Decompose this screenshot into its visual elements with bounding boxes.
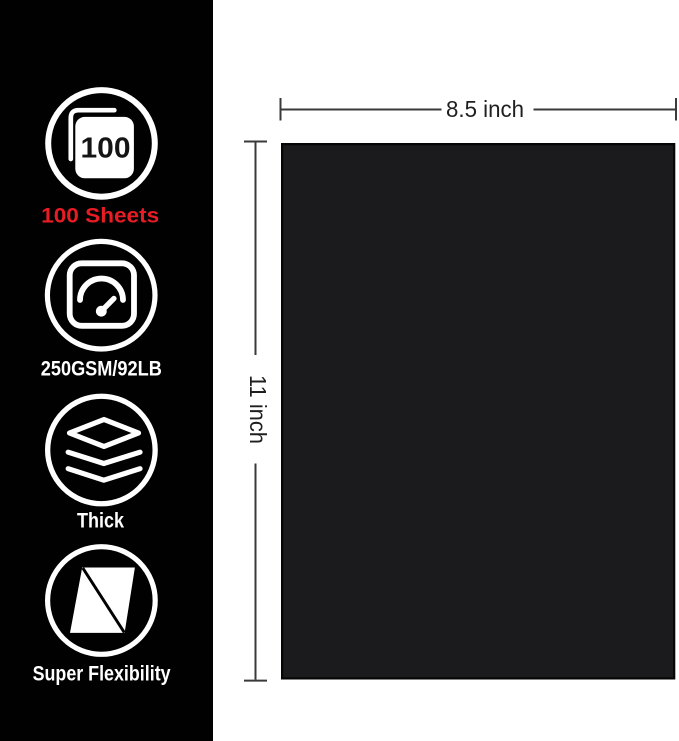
svg-text:Thick: Thick (77, 510, 124, 533)
svg-text:Super Flexibility: Super Flexibility (33, 662, 171, 685)
svg-text:11 inch: 11 inch (245, 375, 271, 444)
svg-text:8.5 inch: 8.5 inch (446, 96, 524, 122)
svg-text:100 Sheets: 100 Sheets (41, 205, 159, 228)
svg-text:100: 100 (81, 132, 131, 164)
svg-text:250GSM/92LB: 250GSM/92LB (41, 358, 162, 381)
